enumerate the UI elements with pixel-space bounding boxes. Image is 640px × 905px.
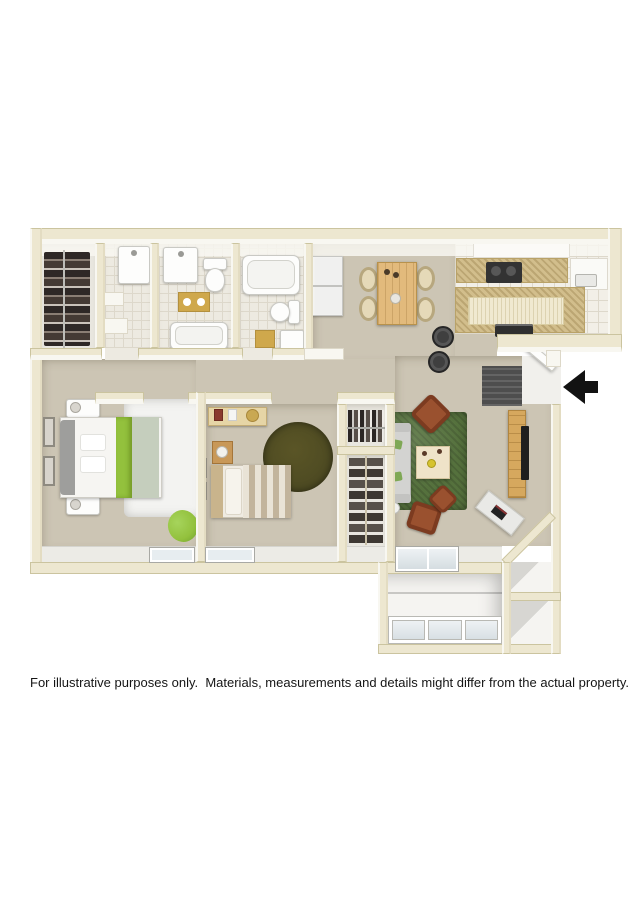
dining-table-plate-1 [384, 269, 390, 275]
bath-b-faucet [178, 251, 184, 257]
master-nightstand-lamp [70, 499, 81, 510]
wall-bath-b-c [231, 243, 240, 348]
bath-c-toilet-bowl [270, 302, 290, 322]
master-window [150, 548, 194, 562]
entry-doormat [482, 366, 522, 406]
entry-door-gap-floor [546, 367, 561, 404]
coffee-table-item [422, 451, 427, 456]
dining-table-plate-2 [393, 272, 399, 278]
dining-chair [359, 296, 378, 321]
bath-c-mat [255, 330, 275, 348]
closet-upper-clothes [348, 410, 384, 442]
dining-table-centerpiece [390, 293, 401, 304]
storage-upper-floor [511, 562, 551, 592]
kitchen-sink [575, 274, 597, 287]
wall-fridge-face [304, 348, 344, 360]
wall-storage-left [502, 562, 511, 654]
wall-bed2-closet [337, 404, 347, 562]
patio-windows [388, 616, 502, 644]
arrow-tail [584, 381, 598, 393]
wall-master-bed2 [196, 392, 206, 562]
entry-arrow-icon [563, 370, 599, 404]
bath-b-tub-inner [175, 326, 223, 345]
floor-plan-page: For illustrative purposes only. Material… [0, 0, 640, 905]
wall-bath-bottom [138, 348, 243, 360]
wall-patio-bottom [378, 644, 561, 654]
patio-window-pane [428, 620, 461, 640]
patio-window-pane [465, 620, 498, 640]
master-wall-art [43, 456, 55, 486]
bar-stool [428, 351, 450, 373]
bedroom2-blanket [243, 465, 291, 518]
storage-lower-floor [511, 601, 551, 644]
master-wall-art [43, 417, 55, 447]
bath-b-mat-sink-2 [197, 298, 205, 306]
master-bed-runner [116, 417, 132, 498]
wall-bedrooms-top [337, 392, 395, 404]
wall-top [30, 228, 622, 244]
bath-a-door-gap [105, 348, 138, 360]
cooktop-burner-1 [491, 266, 501, 276]
patio-shadow-line [388, 592, 502, 594]
wall-bath-dining [304, 243, 313, 356]
coffee-table-bowl [427, 459, 436, 468]
dining-chair [416, 266, 435, 291]
arrow-head [563, 370, 585, 404]
master-nightstand-lamp [70, 402, 81, 413]
patio-window-pane [392, 620, 425, 640]
wall-closet-bottom [30, 348, 102, 360]
disclaimer-text: For illustrative purposes only. Material… [30, 675, 629, 690]
kitchen-upper-counter [473, 243, 570, 258]
bar-stool [432, 326, 454, 348]
wall-closet-living [385, 404, 395, 562]
master-bed-pillow [80, 456, 106, 473]
master-bed-headboard [60, 420, 75, 495]
wall-bath-a-b [150, 243, 159, 348]
wall-patio-left [378, 562, 388, 654]
bedroom2-pillow [225, 468, 242, 515]
bath-a-faucet [131, 250, 137, 256]
bath-c-door-gap [243, 348, 272, 360]
wall-closet-mid [337, 446, 395, 455]
dining-chair [416, 297, 435, 322]
wall-storage-divider [504, 592, 561, 601]
bedroom2-window [206, 548, 254, 562]
wall-bedrooms-top [95, 392, 144, 404]
kitchen-island-top [468, 297, 564, 325]
dresser-frame [214, 409, 223, 421]
dresser-box [228, 409, 237, 421]
wall-right-lower [551, 404, 561, 654]
refrigerator-divider [310, 285, 343, 287]
bedroom2-lamp [216, 446, 228, 458]
patio-sliding-door [396, 547, 458, 571]
closet-lower-pole [365, 456, 367, 545]
bath-c-tub-inner [247, 260, 295, 289]
bedroom2-door-gap [272, 392, 337, 404]
closet-rod [63, 250, 65, 348]
bath-b-toilet-bowl [205, 268, 225, 292]
bedroom2-headboard [211, 465, 223, 518]
dining-chair [359, 267, 378, 292]
closet-hanging-clothes [44, 252, 90, 346]
wall-closet-bath [95, 243, 105, 348]
floor-plan-image: For illustrative purposes only. Material… [0, 0, 640, 905]
wall-left [30, 228, 42, 574]
cooktop-burner-2 [506, 266, 516, 276]
wall-entry-stub [546, 350, 561, 367]
dresser-plate [246, 409, 259, 422]
bath-c-shower [280, 330, 304, 350]
coffee-table-item [437, 449, 442, 454]
bath-b-mat-sink-1 [183, 298, 191, 306]
sliding-door-mullion [427, 549, 429, 569]
closet-upper-rod [347, 427, 385, 429]
master-bed-pillow [80, 434, 106, 451]
tv-screen [521, 426, 529, 480]
master-bed-blanket [132, 417, 159, 498]
